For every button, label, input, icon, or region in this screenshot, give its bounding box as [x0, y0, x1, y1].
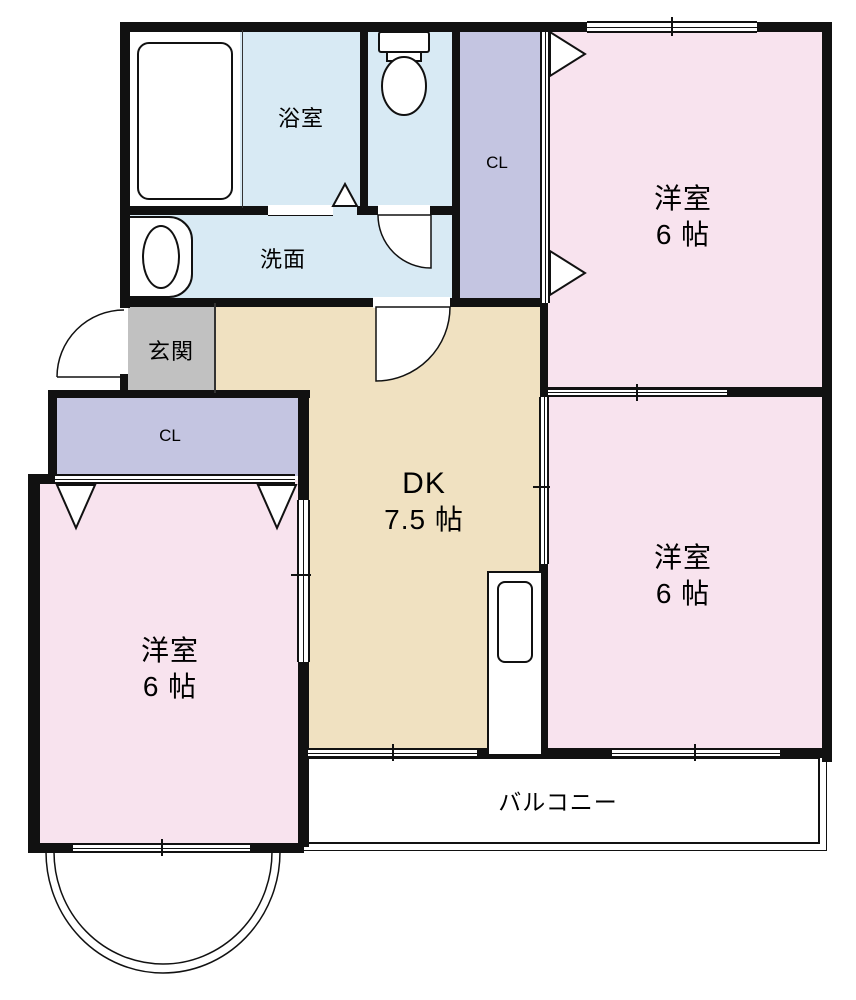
label-bedroom-top-right-name: 洋室 [654, 181, 712, 217]
wall [28, 843, 73, 853]
window-bedroom-balcony [612, 748, 780, 758]
room-dk-upper [215, 302, 544, 400]
sliding-door-dk-bedroom-right [539, 397, 549, 564]
label-bedroom-bottom-right-name: 洋室 [654, 540, 712, 576]
label-bathroom: 浴室 [278, 101, 324, 133]
window-tick [533, 486, 550, 488]
wall [452, 22, 460, 306]
wall [540, 302, 548, 397]
wall [126, 206, 268, 215]
label-washroom: 洗面 [260, 242, 306, 274]
room-toilet [362, 27, 456, 214]
wall [430, 206, 456, 215]
door-opening-bathroom [268, 205, 333, 216]
label-entrance: 玄関 [148, 334, 194, 366]
wall [368, 206, 378, 215]
label-bedroom-bottom-left-name: 洋室 [141, 633, 199, 669]
closet-track-hall [540, 32, 550, 303]
wall [48, 390, 57, 480]
bathtub [137, 42, 233, 200]
wall [298, 390, 309, 500]
sliding-door-dk-bedroom-left [297, 500, 310, 662]
window-tick [694, 744, 696, 761]
washbasin-bowl [142, 225, 180, 289]
label-bedroom-bottom-right-size: 6 帖 [654, 576, 712, 612]
door-arc-entrance [57, 310, 124, 377]
label-bedroom-bottom-left-size: 6 帖 [141, 669, 199, 705]
label-bedroom-bottom-left: 洋室 6 帖 [141, 633, 199, 705]
wall [298, 662, 309, 760]
wall [360, 22, 368, 215]
wall [120, 298, 373, 307]
bay-window-arc-inner [54, 852, 272, 964]
door-opening-dk [373, 297, 450, 308]
wall [28, 474, 57, 484]
label-bedroom-top-right-size: 6 帖 [654, 217, 712, 253]
wall [822, 22, 832, 762]
bay-window-arc-outer [46, 852, 280, 973]
label-bedroom-bottom-right: 洋室 6 帖 [654, 540, 712, 612]
window-tick [291, 574, 311, 576]
entrance-step-edge [214, 303, 216, 393]
label-dk-name: DK [384, 466, 464, 502]
label-dk-size: 7.5 帖 [384, 502, 464, 538]
window-tick [671, 17, 673, 36]
closet-track-bedroom-left [55, 474, 295, 484]
kitchen-sink [497, 581, 533, 663]
label-dk: DK 7.5 帖 [384, 466, 464, 538]
door-opening-toilet [378, 205, 430, 216]
window-tick [161, 839, 163, 856]
bathtub-platform-edge [242, 30, 243, 208]
wall [250, 843, 304, 853]
wall [28, 474, 40, 853]
wall [298, 748, 309, 847]
label-closet-bedroom-left: CL [159, 426, 181, 446]
label-bedroom-top-right: 洋室 6 帖 [654, 181, 712, 253]
wall [357, 206, 368, 215]
wall [450, 298, 545, 307]
window-tick [636, 384, 638, 401]
wall [48, 390, 310, 398]
floor-plan: 浴室 洗面 CL 玄関 CL DK 7.5 帖 洋室 6 帖 洋室 6 帖 洋室… [0, 0, 856, 1000]
label-balcony: バルコニー [498, 783, 618, 817]
label-closet-hall: CL [486, 153, 508, 173]
window-tick [392, 744, 394, 761]
